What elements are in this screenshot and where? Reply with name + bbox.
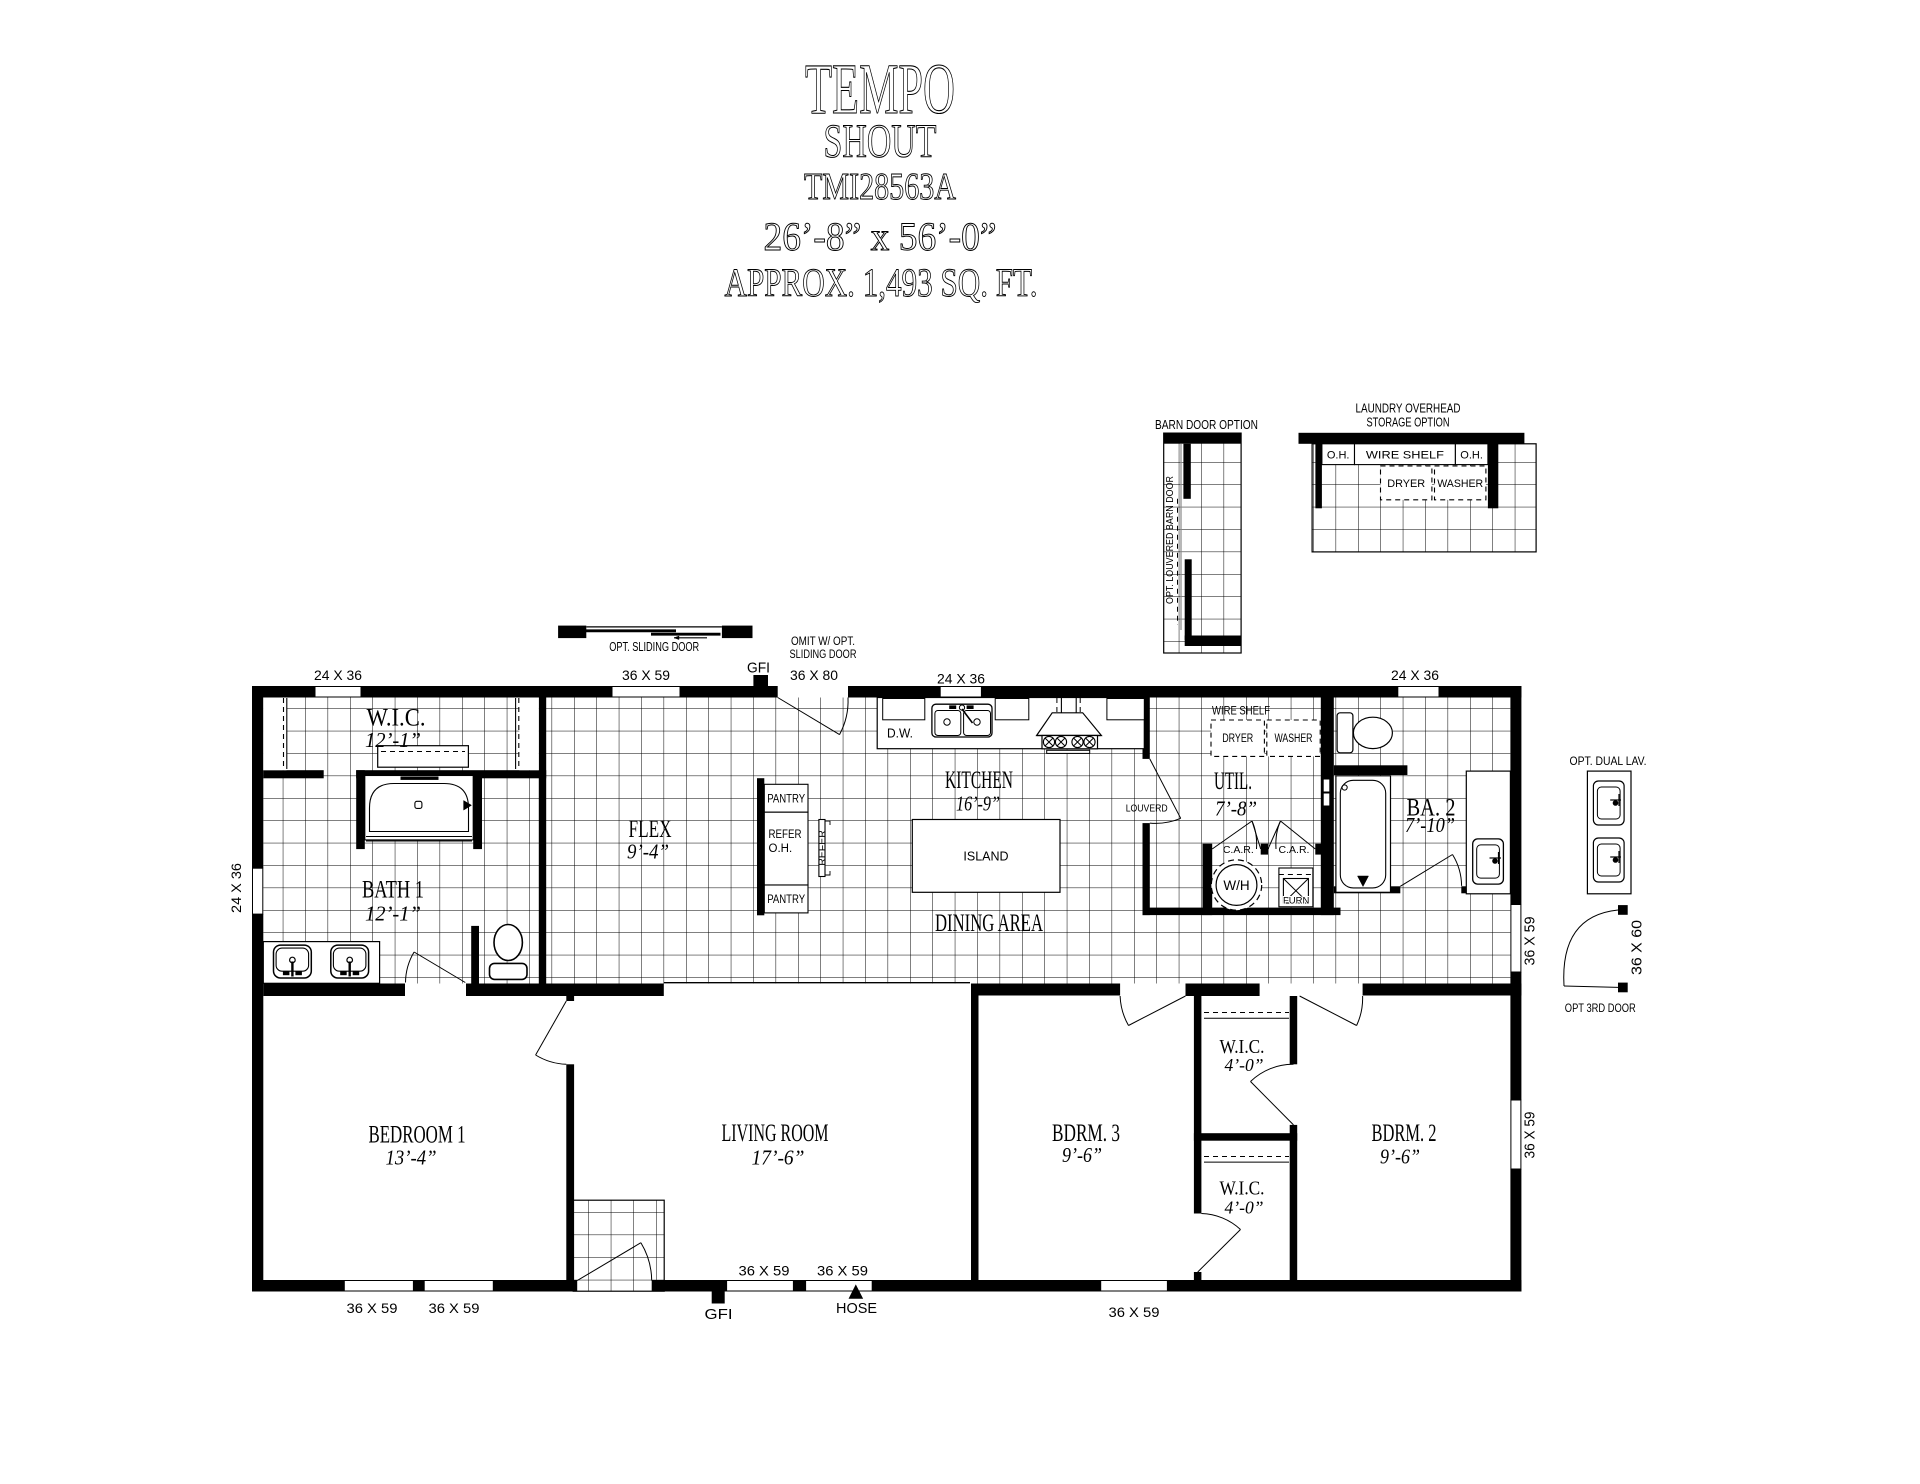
svg-text:SHOUT: SHOUT xyxy=(824,115,937,168)
svg-text:9’-6”: 9’-6” xyxy=(1062,1143,1102,1167)
svg-text:ISLAND: ISLAND xyxy=(963,850,1008,864)
svg-text:GFI: GFI xyxy=(747,660,770,677)
svg-text:LOUVERD: LOUVERD xyxy=(1126,803,1168,815)
svg-text:PANTRY: PANTRY xyxy=(767,894,805,906)
svg-text:W.I.C.: W.I.C. xyxy=(1220,1179,1265,1200)
svg-text:24 X 36: 24 X 36 xyxy=(228,863,244,913)
svg-text:LIVING ROOM: LIVING ROOM xyxy=(722,1120,829,1147)
svg-text:BEDROOM 1: BEDROOM 1 xyxy=(369,1122,466,1149)
svg-text:DRYER: DRYER xyxy=(1222,733,1253,745)
svg-text:7’-8”: 7’-8” xyxy=(1215,797,1257,821)
svg-text:BATH 1: BATH 1 xyxy=(362,877,424,904)
svg-text:4’-0”: 4’-0” xyxy=(1225,1198,1264,1218)
svg-text:36 X 59: 36 X 59 xyxy=(429,1301,480,1316)
svg-text:O.H.: O.H. xyxy=(1327,450,1350,462)
svg-text:4’-0”: 4’-0” xyxy=(1225,1055,1264,1075)
svg-text:12’-1”: 12’-1” xyxy=(365,728,421,752)
svg-text:26’-8” x 56’-0”: 26’-8” x 56’-0” xyxy=(764,214,997,259)
svg-text:OPT. LOUVERED BARN DOOR: OPT. LOUVERED BARN DOOR xyxy=(1164,476,1176,604)
svg-text:OPT 3RD DOOR: OPT 3RD DOOR xyxy=(1565,1001,1636,1015)
svg-text:GFI: GFI xyxy=(705,1306,733,1323)
svg-text:36 X 59: 36 X 59 xyxy=(1109,1305,1160,1320)
svg-text:STORAGE OPTION: STORAGE OPTION xyxy=(1367,416,1450,430)
svg-text:9’-6”: 9’-6” xyxy=(1380,1145,1420,1169)
svg-text:UTIL.: UTIL. xyxy=(1214,768,1252,795)
svg-text:WIRE SHELF: WIRE SHELF xyxy=(1366,450,1444,462)
svg-text:SLIDING DOOR: SLIDING DOOR xyxy=(790,649,857,661)
svg-text:DINING AREA: DINING AREA xyxy=(935,910,1043,937)
svg-text:OPT. DUAL LAV.: OPT. DUAL LAV. xyxy=(1570,754,1647,768)
svg-text:O.H.: O.H. xyxy=(769,843,793,855)
svg-text:WASHER: WASHER xyxy=(1275,733,1313,745)
svg-text:D.W.: D.W. xyxy=(887,727,913,741)
svg-text:PANTRY: PANTRY xyxy=(767,794,805,806)
svg-text:36 X 59: 36 X 59 xyxy=(1523,917,1539,966)
svg-text:OPT. SLIDING DOOR: OPT. SLIDING DOOR xyxy=(609,640,699,654)
svg-text:17’-6”: 17’-6” xyxy=(752,1146,805,1170)
svg-text:7’-10”: 7’-10” xyxy=(1405,813,1455,837)
svg-text:36 X 59: 36 X 59 xyxy=(622,668,670,683)
svg-text:36 X 80: 36 X 80 xyxy=(790,668,838,683)
svg-text:36 X 59: 36 X 59 xyxy=(1523,1112,1539,1159)
svg-text:DRYER: DRYER xyxy=(1387,478,1425,490)
svg-text:13’-4”: 13’-4” xyxy=(386,1146,437,1170)
svg-text:9’-4”: 9’-4” xyxy=(627,840,669,864)
svg-text:TMI28563A: TMI28563A xyxy=(804,166,956,208)
svg-text:36 X 60: 36 X 60 xyxy=(1630,920,1646,975)
svg-text:WASHER: WASHER xyxy=(1437,478,1483,490)
svg-text:16’-9”: 16’-9” xyxy=(956,792,1000,816)
svg-text:36 X 59: 36 X 59 xyxy=(347,1301,398,1316)
svg-text:36 X 59: 36 X 59 xyxy=(739,1264,790,1279)
svg-text:24 X 36: 24 X 36 xyxy=(937,672,985,687)
svg-text:W/H: W/H xyxy=(1223,878,1249,893)
svg-text:REFER: REFER xyxy=(769,829,802,841)
svg-text:24 X 36: 24 X 36 xyxy=(1391,668,1439,683)
svg-text:KITCHEN: KITCHEN xyxy=(945,767,1013,794)
svg-text:OMIT W/ OPT.: OMIT W/ OPT. xyxy=(791,636,855,648)
svg-text:REFER: REFER xyxy=(816,830,828,866)
svg-text:C.A.R.: C.A.R. xyxy=(1279,844,1310,856)
svg-text:12’-1”: 12’-1” xyxy=(365,902,421,926)
svg-text:C.A.R.: C.A.R. xyxy=(1223,844,1254,856)
svg-text:WIRE SHELF: WIRE SHELF xyxy=(1212,706,1270,718)
svg-text:BDRM. 2: BDRM. 2 xyxy=(1372,1120,1437,1147)
svg-text:O.H.: O.H. xyxy=(1460,450,1483,462)
svg-text:LAUNDRY OVERHEAD: LAUNDRY OVERHEAD xyxy=(1356,402,1461,416)
svg-text:24 X 36: 24 X 36 xyxy=(314,668,362,683)
svg-text:BARN DOOR OPTION: BARN DOOR OPTION xyxy=(1155,418,1258,432)
svg-text:FURN: FURN xyxy=(1283,896,1310,907)
svg-text:APPROX. 1,493 SQ. FT.: APPROX. 1,493 SQ. FT. xyxy=(725,260,1038,305)
svg-text:36 X 59: 36 X 59 xyxy=(817,1264,868,1279)
svg-text:HOSE: HOSE xyxy=(836,1300,877,1317)
